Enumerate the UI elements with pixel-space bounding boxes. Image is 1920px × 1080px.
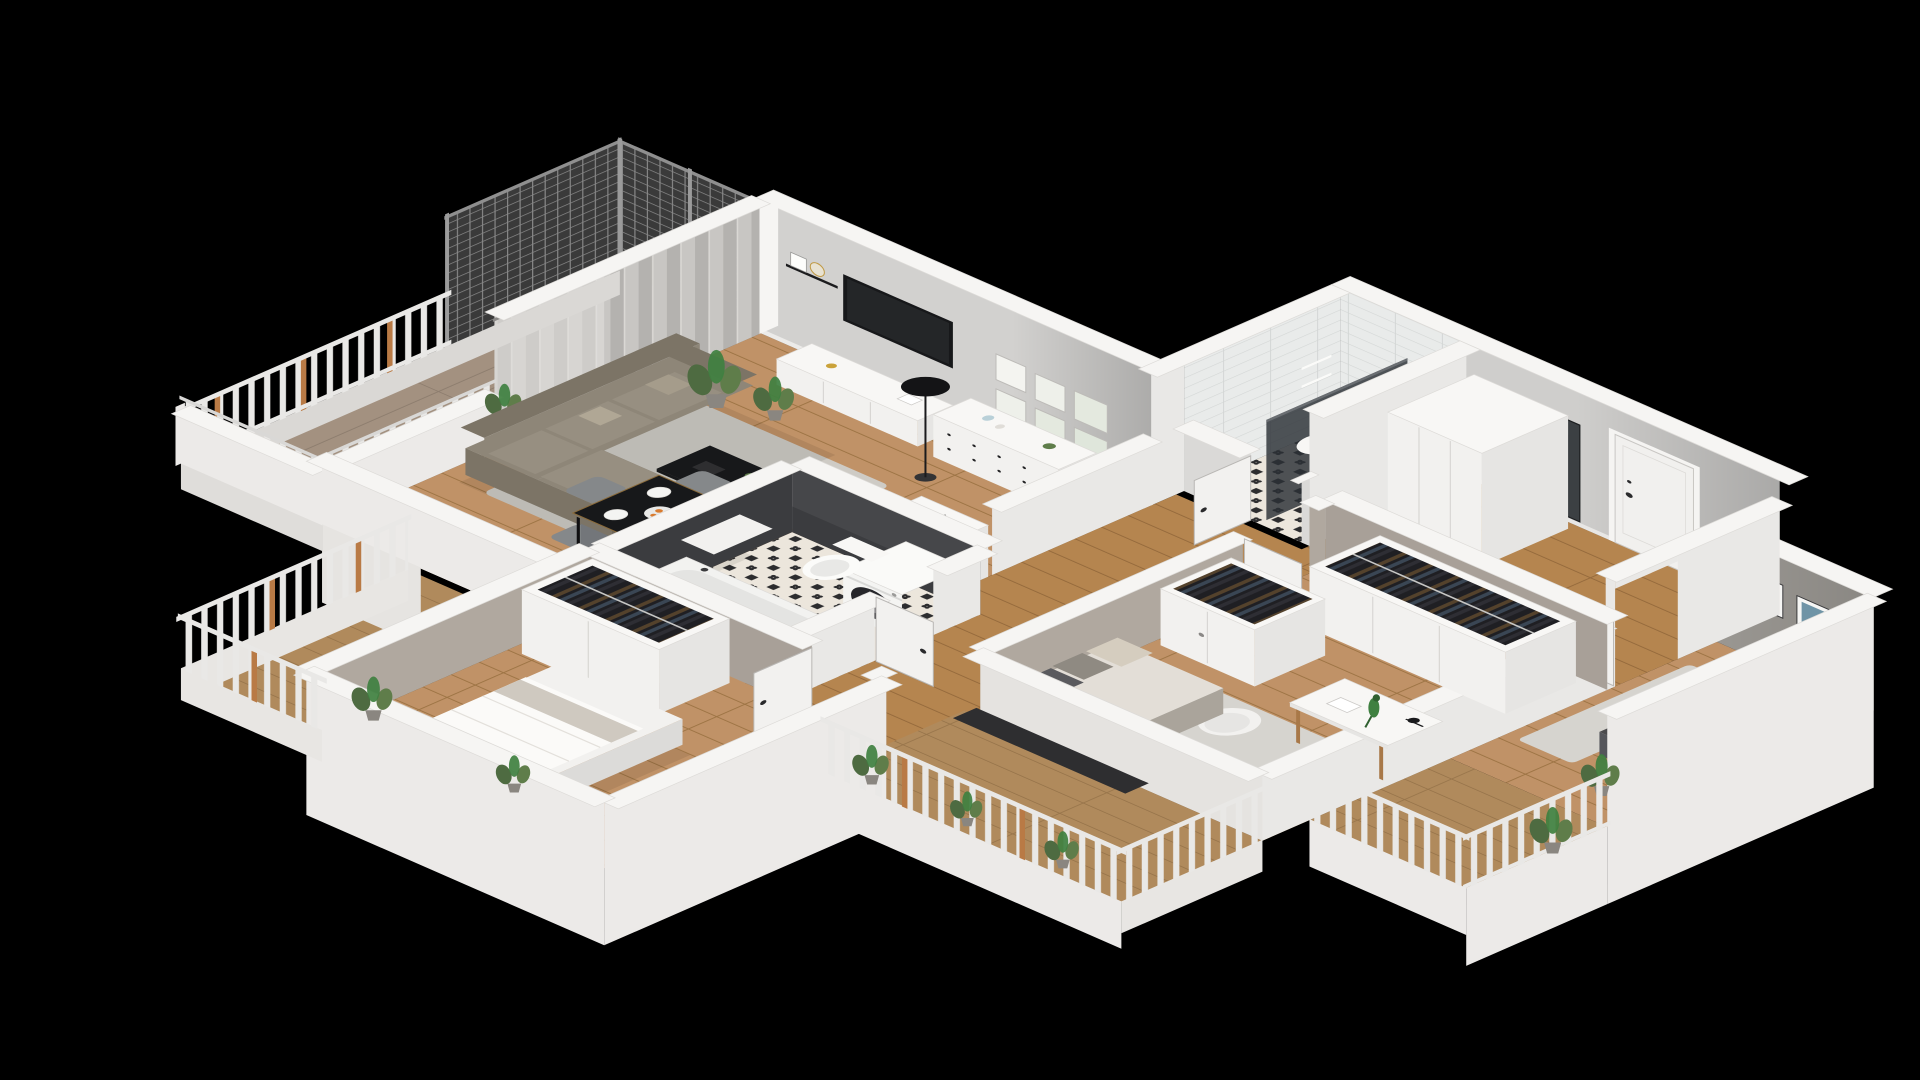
floorplan-render-stage [0, 0, 1920, 1080]
apartment-isometric-render [0, 0, 1920, 1080]
living-north-wall-end [759, 192, 778, 334]
